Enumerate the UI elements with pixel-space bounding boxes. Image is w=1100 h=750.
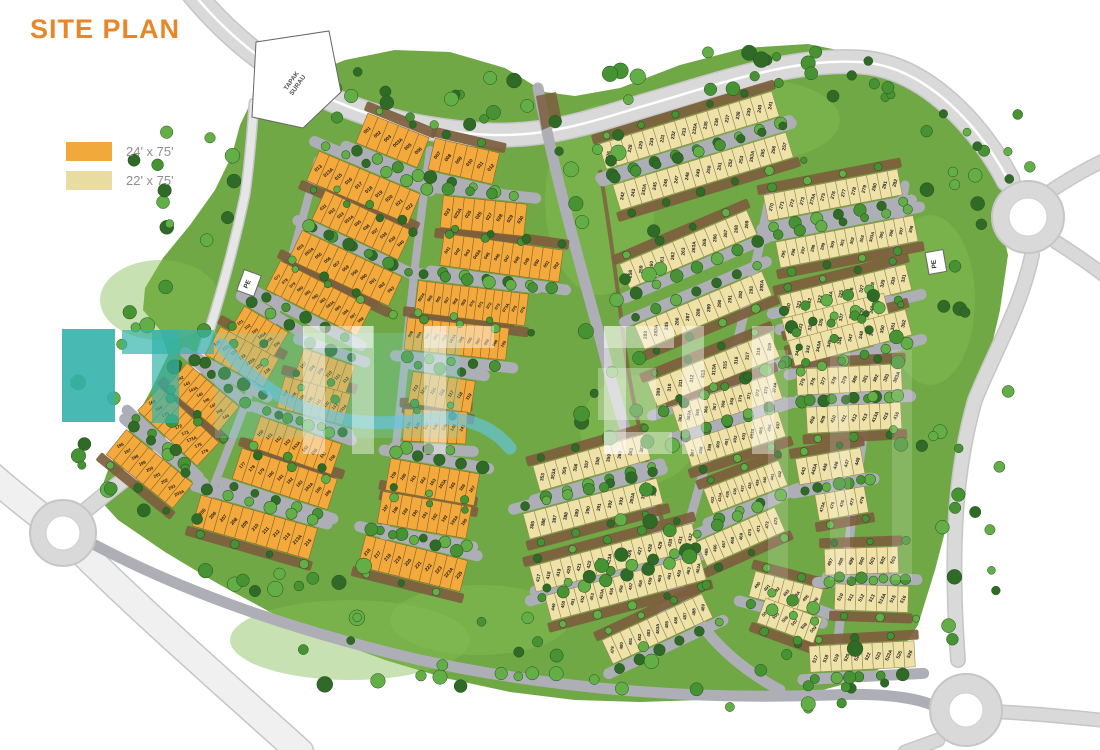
roundabout <box>992 181 1064 253</box>
lot-number: 437 <box>739 484 745 492</box>
lot-number: 368 <box>720 400 726 409</box>
lot-number: 486 <box>673 616 678 624</box>
lot-number: 487 <box>682 612 687 620</box>
lot-number: 467 <box>721 540 726 548</box>
lot-number: 400 <box>715 440 721 449</box>
lot-number: 287 <box>685 313 691 322</box>
legend: 24' x 75' 22' x 75' <box>66 141 174 199</box>
lot-number: 436 <box>732 487 738 495</box>
roundabout <box>30 500 96 566</box>
lot-number: 401 <box>724 437 730 446</box>
lot-number: 262 <box>670 252 676 261</box>
lot-number: 267 <box>723 229 729 238</box>
lot-number: 471 <box>756 525 761 533</box>
lot-number: 480 <box>619 642 624 650</box>
lot-number: 470 <box>747 528 752 536</box>
lot-number: 469 <box>738 532 743 540</box>
lot-number: 483 <box>646 629 651 637</box>
lot-number: 402 <box>732 435 738 444</box>
lot-number: 263A <box>691 241 698 253</box>
lot-number: 399 <box>706 443 712 452</box>
lot-number: 465 <box>704 548 709 556</box>
lot-number: 403 <box>741 432 747 441</box>
pe-plot-right: PE <box>925 250 947 275</box>
legend-label-24: 24' x 75' <box>126 144 174 159</box>
lot-number: 317 <box>745 352 752 361</box>
lot-number: 367 <box>712 402 718 411</box>
lot-number: 266 <box>712 234 718 243</box>
roundabout <box>930 674 1002 746</box>
lot-number: 268 <box>733 225 739 234</box>
lot-number: 288 <box>696 308 702 317</box>
lot-number: 433A <box>717 492 723 502</box>
lot-number: 479 <box>610 646 615 654</box>
lot-number: 293A <box>759 279 766 291</box>
legend-swatch-24 <box>66 142 112 161</box>
lot-number: 433 <box>710 496 716 504</box>
site-plan-map: 001002003003A005006007008009010011012013… <box>0 0 1100 750</box>
legend-item-22: 22' x 75' <box>66 170 174 190</box>
page-title: SITE PLAN <box>30 14 180 45</box>
lot-number: 485 <box>664 620 669 628</box>
lot-number: 289 <box>706 304 712 313</box>
lot-number: 292 <box>738 290 744 299</box>
lot-number: 263 <box>681 247 687 256</box>
lot-number: 316 <box>733 356 740 365</box>
lot-number: 482 <box>637 633 642 641</box>
lot-number: 440 <box>762 476 768 484</box>
lot-number: 483A <box>655 623 660 634</box>
lot-number: 439 <box>754 479 760 487</box>
lot-number: 286 <box>674 317 680 326</box>
lot-number: 468 <box>730 536 735 544</box>
lot-number: 290 <box>717 299 723 308</box>
lot-number: 488 <box>691 608 696 616</box>
lot-number: 293 <box>748 286 754 295</box>
lot-number: 291 <box>727 295 733 304</box>
lot-number: 489 <box>700 603 705 611</box>
lot-number: 438 <box>747 481 753 489</box>
lot-number: 269 <box>744 220 750 229</box>
lot-number: 313A <box>711 363 718 375</box>
legend-item-24: 24' x 75' <box>66 141 174 161</box>
lot-number: 371 <box>746 391 752 400</box>
lot-number: 310 <box>667 383 674 392</box>
lot-number: 435 <box>724 490 730 498</box>
lot-number: 370 <box>737 394 743 403</box>
lot-number: 466 <box>712 544 717 552</box>
lot-number: 309 <box>656 388 663 397</box>
legend-swatch-22 <box>66 171 112 190</box>
lot-number: 369 <box>729 397 735 406</box>
lot-number: 265 <box>702 238 708 247</box>
legend-label-22: 22' x 75' <box>126 173 174 188</box>
lot-number: 315 <box>722 361 729 370</box>
site-plan-page: 001002003003A005006007008009010011012013… <box>0 0 1100 750</box>
lot-number: 481 <box>628 637 633 645</box>
pe-plot-right-label: PE <box>931 259 939 269</box>
